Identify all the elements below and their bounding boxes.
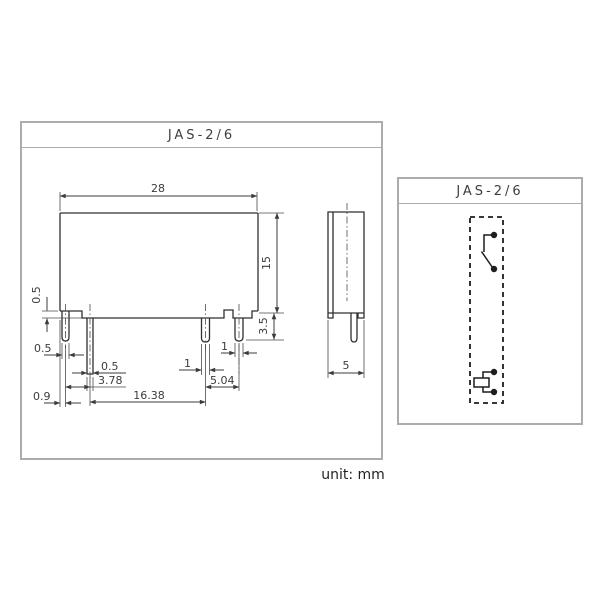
schematic-panel-title: JAS-2/6 bbox=[456, 184, 523, 199]
schematic-panel: JAS-2/6 bbox=[397, 177, 583, 425]
schematic-panel-titlebar: JAS-2/6 bbox=[399, 179, 581, 204]
dimension-panel-title: JAS-2/6 bbox=[168, 128, 235, 143]
dimension-panel-titlebar: JAS-2/6 bbox=[22, 123, 381, 148]
unit-note: unit: mm bbox=[318, 467, 388, 483]
dimension-panel: JAS-2/6 bbox=[20, 121, 383, 460]
